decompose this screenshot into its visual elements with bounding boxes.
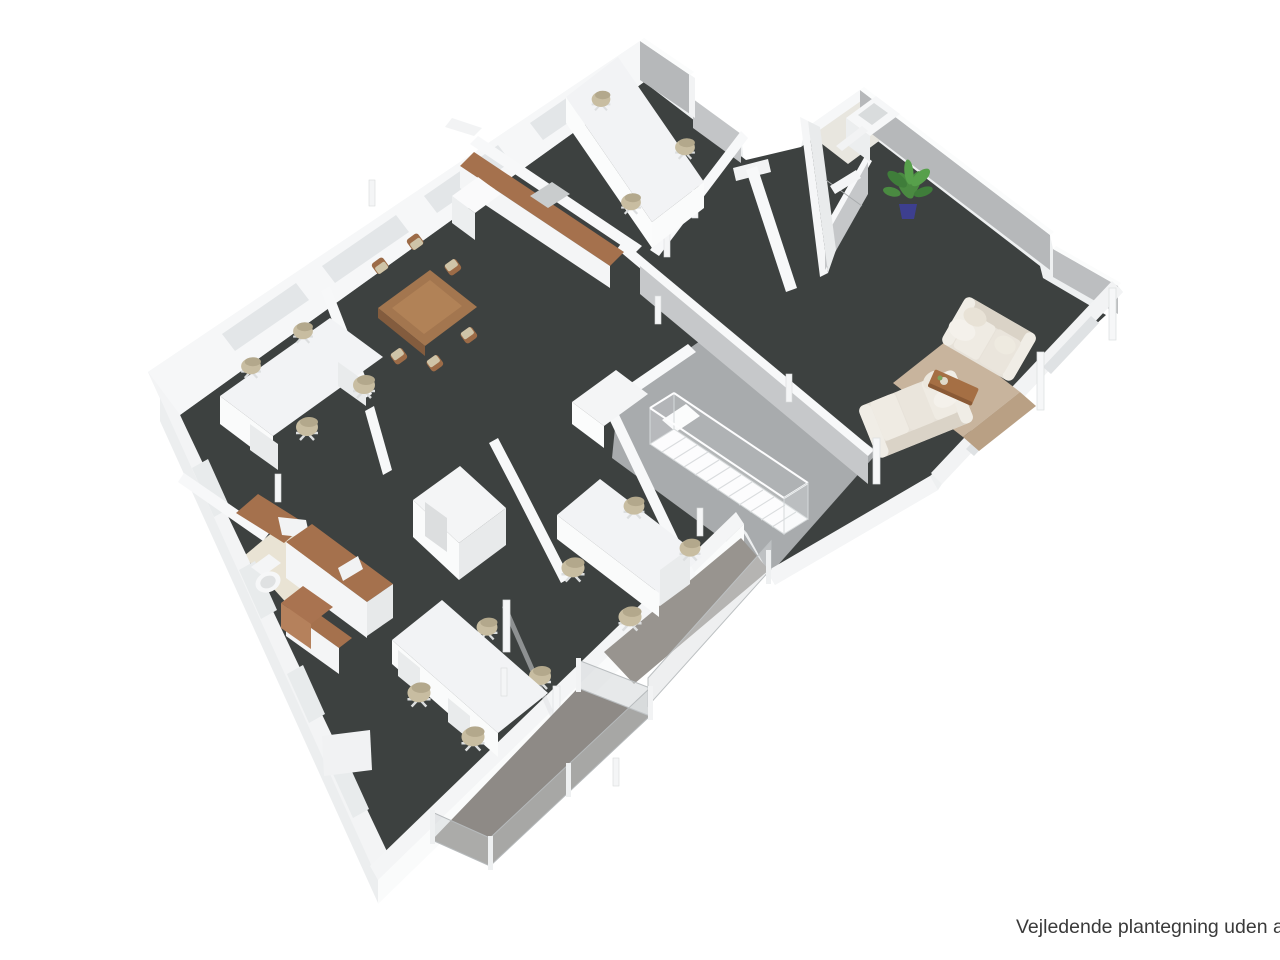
svg-text:Vejledende plantegning uden an: Vejledende plantegning uden an — [1016, 916, 1280, 938]
